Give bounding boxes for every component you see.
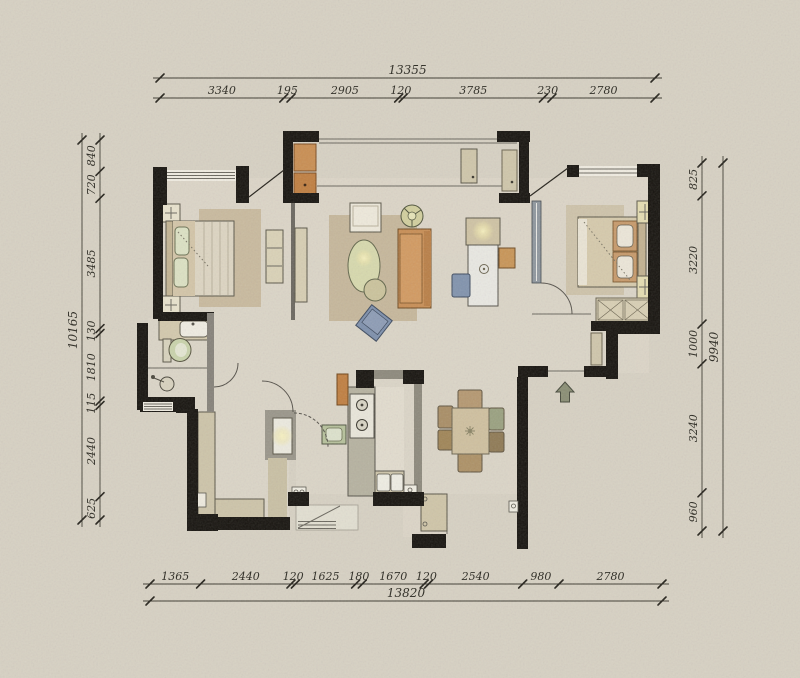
floor-plan-drawing: 3340195290512037852302780133551365244012… (0, 0, 800, 678)
paper-grain-texture (0, 0, 800, 678)
floor-plan-canvas: 3340195290512037852302780133551365244012… (0, 0, 800, 678)
